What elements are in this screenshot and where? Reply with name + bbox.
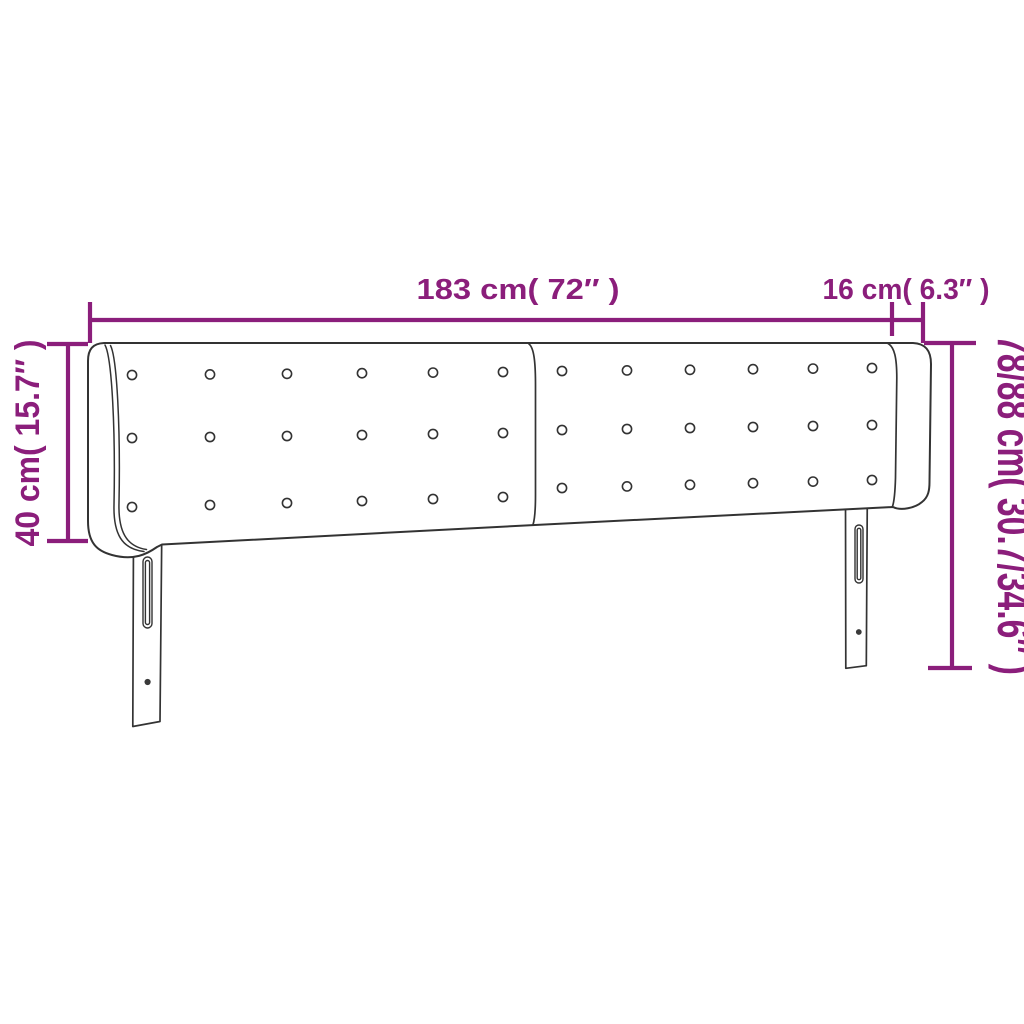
tufting-button bbox=[748, 422, 757, 431]
side-panel-depth-dimension: 16 cm( 6.3″ ) bbox=[823, 274, 990, 306]
tufting-button bbox=[685, 423, 694, 432]
tufting-button bbox=[557, 366, 566, 375]
tufting-button bbox=[205, 500, 214, 509]
total-width-label: 183 cm( 72″ ) bbox=[417, 274, 620, 306]
tufting-button bbox=[282, 369, 291, 378]
tufting-button bbox=[808, 477, 817, 486]
right-leg bbox=[846, 499, 868, 668]
tufting-button bbox=[428, 429, 437, 438]
tufting-button bbox=[748, 479, 757, 488]
headboard-height-label: 40 cm( 15.7″ ) bbox=[9, 340, 47, 547]
tufting-button bbox=[808, 364, 817, 373]
tufting-button bbox=[205, 432, 214, 441]
left-leg bbox=[133, 531, 162, 727]
headboard-height-dimension: 40 cm( 15.7″ ) bbox=[9, 340, 88, 547]
tufting-button bbox=[867, 363, 876, 372]
tufting-button bbox=[622, 366, 631, 375]
tufting-button bbox=[205, 370, 214, 379]
tufting-button bbox=[127, 502, 136, 511]
tufting-button bbox=[622, 482, 631, 491]
tufting-button bbox=[808, 421, 817, 430]
tufting-button bbox=[498, 367, 507, 376]
tufting-button bbox=[428, 368, 437, 377]
tufting-button bbox=[498, 428, 507, 437]
total-width-dimension: 183 cm( 72″ ) bbox=[90, 274, 923, 343]
side-panel-depth-label: 16 cm( 6.3″ ) bbox=[823, 274, 990, 306]
tufting-button bbox=[127, 433, 136, 442]
right-leg-screw-hole bbox=[856, 629, 862, 635]
tufting-button bbox=[357, 369, 366, 378]
total-height-dimension: 78/88 cm( 30.7/34.6″ ) bbox=[924, 335, 1024, 675]
left-leg-screw-hole bbox=[145, 679, 151, 685]
tufting-button bbox=[622, 424, 631, 433]
tufting-button bbox=[282, 498, 291, 507]
tufting-button bbox=[498, 492, 507, 501]
tufting-button bbox=[685, 365, 694, 374]
total-height-label: 78/88 cm( 30.7/34.6″ ) bbox=[988, 335, 1024, 675]
tufting-button bbox=[282, 431, 291, 440]
tufting-button bbox=[557, 425, 566, 434]
headboard-dimension-diagram: 183 cm( 72″ ) 16 cm( 6.3″ ) 40 cm( 15.7″… bbox=[0, 0, 1024, 1024]
tufting-button bbox=[357, 430, 366, 439]
tufting-button bbox=[867, 420, 876, 429]
tufting-button bbox=[357, 496, 366, 505]
tufting-button bbox=[867, 475, 876, 484]
tufting-button bbox=[557, 483, 566, 492]
right-leg-body bbox=[846, 499, 868, 668]
tufting-button bbox=[428, 494, 437, 503]
tufting-button bbox=[127, 370, 136, 379]
tufting-button bbox=[748, 365, 757, 374]
tufting-button bbox=[685, 480, 694, 489]
diagram-canvas: 183 cm( 72″ ) 16 cm( 6.3″ ) 40 cm( 15.7″… bbox=[0, 0, 1024, 1024]
